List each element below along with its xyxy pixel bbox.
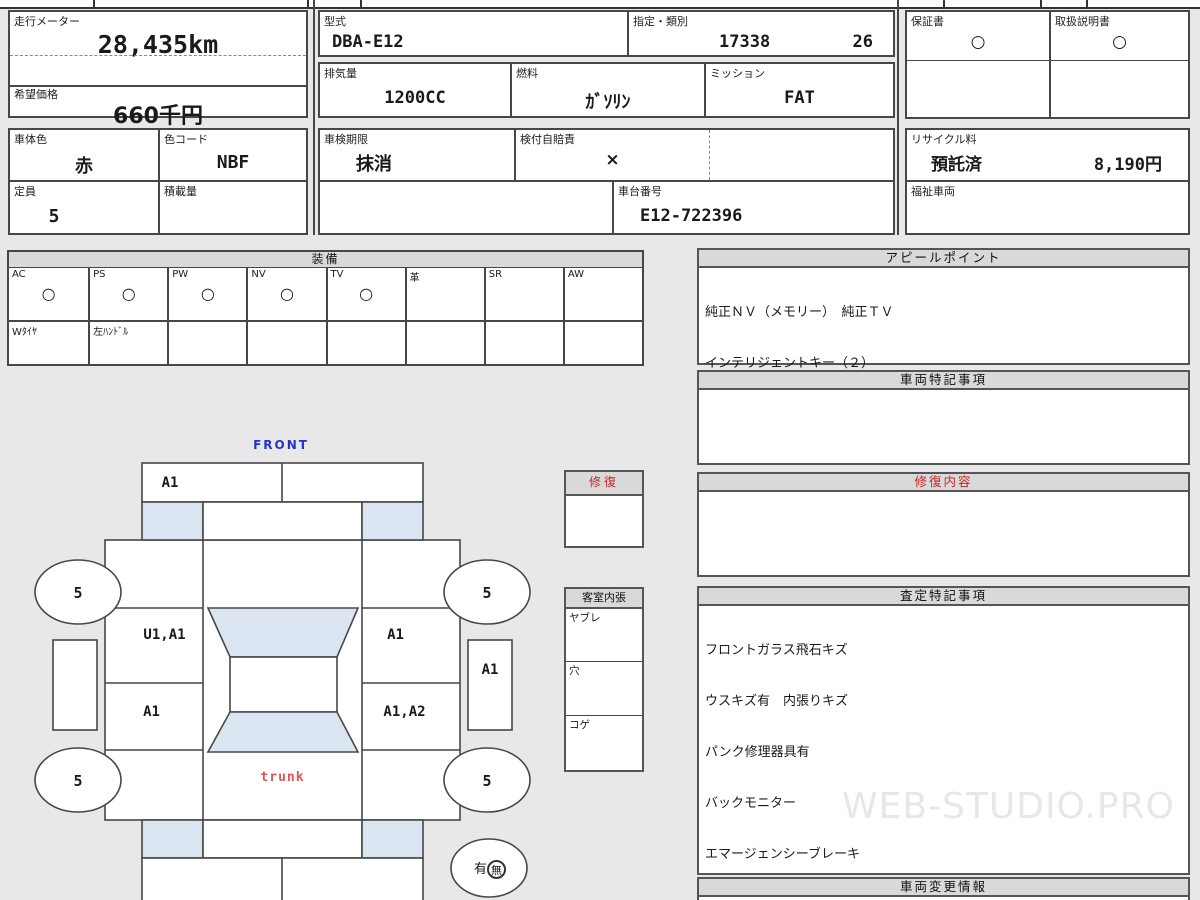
wheel-score-front-left: 5 xyxy=(58,584,98,602)
equipment-cell-sr: SR xyxy=(484,268,563,320)
equipment-extra-cell xyxy=(167,320,246,365)
assessment-line: ウスキズ有 内張りキズ xyxy=(705,693,1182,710)
equipment-label: TV xyxy=(331,269,344,280)
body-color-value: 赤 xyxy=(10,152,158,178)
windshield xyxy=(208,608,358,657)
interior-box-title: 客室内張 xyxy=(566,589,642,609)
column-divider-line xyxy=(897,0,899,235)
load-label: 積載量 xyxy=(164,183,197,199)
equipment-mark: ○ xyxy=(328,284,405,303)
appeal-line: 純正ＮＶ（メモリー） 純正ＴＶ xyxy=(705,304,1182,321)
taillight-left xyxy=(142,820,203,858)
assessment-title: 査定特記事項 xyxy=(699,588,1188,606)
hood-front xyxy=(203,502,362,540)
top-row-divider xyxy=(943,0,945,7)
color-capacity-box: 車体色 赤 色コード NBF 定員 5 積載量 xyxy=(8,128,308,235)
equipment-label: PS xyxy=(93,269,105,280)
left-front-door-mark: U1,A1 xyxy=(122,627,207,643)
change-info-panel: 車両変更情報 xyxy=(697,877,1190,900)
trunk-label: trunk xyxy=(240,770,325,785)
equipment-extra-cell xyxy=(563,320,642,365)
equipment-cell-leather: 革 xyxy=(405,268,484,320)
recycle-welfare-box: リサイクル料 預託済 8,190円 福祉車両 xyxy=(905,128,1190,235)
model-code-value: DBA-E12 xyxy=(332,32,404,52)
warranty-mark: ○ xyxy=(907,32,1049,52)
equipment-label: SR xyxy=(489,269,502,280)
repair-box: 修復 xyxy=(564,470,644,548)
top-row-divider xyxy=(307,0,309,7)
equipment-label: AC xyxy=(12,269,26,280)
recycle-cell: リサイクル料 預託済 8,190円 xyxy=(907,130,1188,180)
chassis-value: E12-722396 xyxy=(640,206,742,226)
interior-box: 客室内張 ヤブレ 穴 コゲ xyxy=(564,587,644,772)
inspection-value: 抹消 xyxy=(356,150,392,176)
equipment-label: AW xyxy=(568,269,584,280)
chassis-label: 車台番号 xyxy=(618,183,662,199)
warranty-manual-box: 保証書 ○ 取扱説明書 ○ xyxy=(905,10,1190,119)
body-color-cell: 車体色 赤 xyxy=(10,130,158,180)
wheel-score-rear-left: 5 xyxy=(58,772,98,790)
inspection-row: 車検期限 抹消 検付自賠責 × xyxy=(320,130,893,180)
capacity-cell: 定員 5 xyxy=(10,180,158,233)
designation-class: 26 xyxy=(853,32,873,52)
engine-box: 排気量 1200CC 燃料 ｶﾞｿﾘﾝ ミッション FAT xyxy=(318,62,895,118)
warranty-cell: 保証書 ○ xyxy=(907,12,1049,117)
interior-row-label: コゲ xyxy=(569,717,590,732)
interior-row-burn: コゲ xyxy=(566,715,642,768)
mission-label: ミッション xyxy=(710,65,765,81)
presence-yes: 有 xyxy=(474,862,487,877)
color-code-label: 色コード xyxy=(164,131,208,147)
equipment-extra-cell xyxy=(405,320,484,365)
front-bumper-mark: A1 xyxy=(150,475,190,491)
model-box: 型式 DBA-E12 指定・類別 17338 26 xyxy=(318,10,895,57)
designation-number: 17338 xyxy=(719,32,770,52)
capacity-label: 定員 xyxy=(14,183,36,199)
inspection-label: 車検期限 xyxy=(324,131,368,147)
vehicle-notes-panel: 車両特記事項 xyxy=(697,370,1190,465)
fuel-value: ｶﾞｿﾘﾝ xyxy=(512,88,704,114)
equipment-extra-cell: 左ﾊﾝﾄﾞﾙ xyxy=(88,320,167,365)
equipment-extra: Wﾀｲﾔ xyxy=(12,323,37,338)
model-code-label: 型式 xyxy=(324,13,346,29)
inspection-empty-cell xyxy=(709,130,893,180)
right-mirror xyxy=(468,640,512,730)
interior-row-hole: 穴 xyxy=(566,661,642,715)
equipment-cell-ps: PS ○ xyxy=(88,268,167,320)
chassis-row: 車台番号 E12-722396 xyxy=(320,180,893,233)
equipment-cell-ac: AC ○ xyxy=(9,268,88,320)
equipment-label: NV xyxy=(251,269,265,280)
top-partial-row xyxy=(0,0,1200,9)
equipment-mark: ○ xyxy=(90,284,167,303)
roof xyxy=(230,657,337,712)
headlight-right xyxy=(362,502,423,540)
equipment-label: 革 xyxy=(410,269,420,284)
equipment-extra-cell xyxy=(326,320,405,365)
recycle-status: 預託済 xyxy=(931,150,982,175)
body-color-label: 車体色 xyxy=(14,131,47,147)
equipment-extra-cell: Wﾀｲﾔ xyxy=(9,320,88,365)
recycle-fee: 8,190円 xyxy=(1094,150,1162,175)
capacity-value: 5 xyxy=(0,206,158,227)
inspection-cell: 車検期限 抹消 xyxy=(320,130,514,180)
vehicle-notes-title: 車両特記事項 xyxy=(699,372,1188,390)
equipment-cell-pw: PW ○ xyxy=(167,268,246,320)
equipment-extra-cell xyxy=(246,320,325,365)
chassis-cell: 車台番号 E12-722396 xyxy=(612,182,893,233)
equipment-cell-tv: TV ○ xyxy=(326,268,405,320)
trunk-rear xyxy=(203,820,362,858)
warranty-label: 保証書 xyxy=(911,13,944,29)
top-row-divider xyxy=(93,0,95,7)
displacement-cell: 排気量 1200CC xyxy=(320,64,510,116)
designation-label: 指定・類別 xyxy=(633,13,688,29)
manual-label: 取扱説明書 xyxy=(1055,13,1110,29)
inspection-chassis-box: 車検期限 抹消 検付自賠責 × 車台番号 E12-722396 xyxy=(318,128,895,235)
insurance-label: 検付自賠責 xyxy=(520,131,575,147)
designation-cell: 指定・類別 17338 26 xyxy=(627,12,893,55)
equipment-mark: ○ xyxy=(9,284,88,303)
equipment-cell-aw: AW xyxy=(563,268,642,320)
right-rear-door-mark: A1,A2 xyxy=(372,704,437,720)
presence-mark: 有無 xyxy=(452,858,528,879)
equipment-title: 装備 xyxy=(9,252,642,268)
assessment-line: フロントガラス飛石キズ xyxy=(705,642,1182,659)
interior-row-tear: ヤブレ xyxy=(566,609,642,661)
fuel-label: 燃料 xyxy=(516,65,538,81)
repair-detail-title: 修復内容 xyxy=(699,474,1188,492)
odometer-label: 走行メーター xyxy=(14,13,80,29)
manual-cell: 取扱説明書 ○ xyxy=(1049,12,1188,117)
equipment-label: PW xyxy=(172,269,188,280)
repair-detail-panel: 修復内容 xyxy=(697,472,1190,577)
odometer-price-box: 走行メーター 28,435km 希望価格 660千円 xyxy=(8,10,308,118)
assessment-line: パンク修理器具有 xyxy=(705,744,1182,761)
column-divider-line xyxy=(313,0,315,235)
dashed-divider xyxy=(10,55,306,56)
wheel-score-front-right: 5 xyxy=(467,584,507,602)
displacement-label: 排気量 xyxy=(324,65,357,81)
displacement-value: 1200CC xyxy=(320,88,510,108)
auction-sheet-page: 走行メーター 28,435km 希望価格 660千円 車体色 赤 色コード NB… xyxy=(0,0,1200,900)
left-mirror xyxy=(53,640,97,730)
taillight-right xyxy=(362,820,423,858)
insurance-cell: 検付自賠責 × xyxy=(514,130,709,180)
assessment-line: エマージェンシーブレーキ xyxy=(705,846,1182,863)
assessment-panel: 査定特記事項 フロントガラス飛石キズ ウスキズ有 内張りキズ パンク修理器具有 … xyxy=(697,586,1190,875)
fuel-cell: 燃料 ｶﾞｿﾘﾝ xyxy=(510,64,704,116)
appeal-panel: アピールポイント 純正ＮＶ（メモリー） 純正ＴＶ インテリジェントキー（２） xyxy=(697,248,1190,365)
equipment-cell-nv: NV ○ xyxy=(246,268,325,320)
manual-mark: ○ xyxy=(1051,32,1188,52)
top-row-divider xyxy=(1086,0,1088,7)
interior-row-label: 穴 xyxy=(569,663,580,678)
insurance-value: × xyxy=(516,150,709,170)
equipment-mark: ○ xyxy=(169,284,246,303)
model-code-cell: 型式 DBA-E12 xyxy=(320,12,627,55)
interior-row-label: ヤブレ xyxy=(569,610,601,625)
front-label: FRONT xyxy=(250,438,312,452)
color-code-value: NBF xyxy=(160,152,306,173)
right-mirror-mark: A1 xyxy=(470,662,510,678)
recycle-label: リサイクル料 xyxy=(911,131,976,147)
top-row-divider xyxy=(360,0,362,7)
presence-no-circled: 無 xyxy=(487,860,506,879)
load-cell: 積載量 xyxy=(158,180,306,233)
divider xyxy=(907,60,1188,61)
equipment-mark: ○ xyxy=(248,284,325,303)
wheel-score-rear-right: 5 xyxy=(467,772,507,790)
price-value: 660千円 xyxy=(10,98,306,130)
car-diagram xyxy=(30,437,545,900)
welfare-cell: 福祉車両 xyxy=(907,180,1188,233)
chassis-empty-cell xyxy=(320,182,612,233)
watermark: WEB-STUDIO.PRO xyxy=(842,786,1192,827)
color-code-cell: 色コード NBF xyxy=(158,130,306,180)
left-rear-door-mark: A1 xyxy=(124,704,179,720)
repair-box-title: 修復 xyxy=(566,472,642,496)
change-info-title: 車両変更情報 xyxy=(699,879,1188,897)
equipment-table: 装備 AC ○ PS ○ PW ○ NV ○ TV ○ 革 xyxy=(7,250,644,366)
top-row-divider xyxy=(1040,0,1042,7)
mission-cell: ミッション FAT xyxy=(704,64,893,116)
right-front-fender-mark: A1 xyxy=(368,627,423,643)
mission-value: FAT xyxy=(706,88,893,108)
headlight-left xyxy=(142,502,203,540)
welfare-label: 福祉車両 xyxy=(911,183,955,199)
appeal-title: アピールポイント xyxy=(699,250,1188,268)
equipment-extra-cell xyxy=(484,320,563,365)
rear-window xyxy=(208,712,358,752)
equipment-extra: 左ﾊﾝﾄﾞﾙ xyxy=(93,323,128,338)
